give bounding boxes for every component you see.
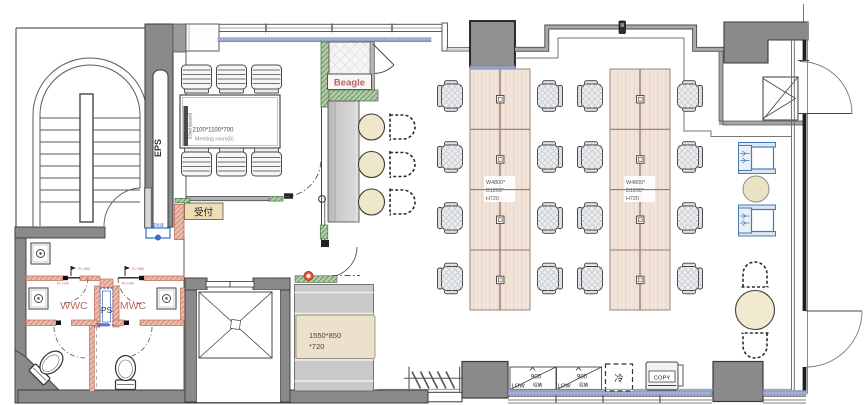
svg-text:FL+100: FL+100 xyxy=(57,282,69,286)
svg-text:EPS: EPS xyxy=(153,139,163,157)
svg-text:W4800*: W4800* xyxy=(486,180,506,186)
svg-text:LOW: LOW xyxy=(512,384,526,390)
svg-text:収納: 収納 xyxy=(533,382,543,389)
svg-text:COPY: COPY xyxy=(654,376,671,382)
svg-text:電気錠: 電気錠 xyxy=(152,222,164,228)
svg-text:PS: PS xyxy=(101,305,113,315)
svg-text:Meeting room(6): Meeting room(6) xyxy=(195,137,234,143)
svg-text:D1200*: D1200* xyxy=(626,188,645,194)
svg-text:WWC: WWC xyxy=(60,300,88,312)
svg-text:受付: 受付 xyxy=(194,207,214,219)
svg-text:*720: *720 xyxy=(309,342,324,351)
svg-text:900: 900 xyxy=(577,375,588,381)
svg-text:D1200*: D1200* xyxy=(486,188,505,194)
svg-text:2100*1100*700: 2100*1100*700 xyxy=(193,128,235,134)
svg-text:1550*850: 1550*850 xyxy=(309,331,341,340)
svg-text:FL+450: FL+450 xyxy=(78,267,90,271)
svg-text:LOW: LOW xyxy=(558,384,572,390)
svg-text:53inch(stand): 53inch(stand) xyxy=(188,112,193,139)
svg-text:H720: H720 xyxy=(626,196,639,202)
svg-text:H720: H720 xyxy=(486,196,499,202)
svg-text:収納: 収納 xyxy=(579,382,589,389)
svg-text:Beagle: Beagle xyxy=(334,78,365,89)
svg-text:FL+450: FL+450 xyxy=(132,267,144,271)
svg-text:冷: 冷 xyxy=(614,373,623,384)
svg-text:W4800*: W4800* xyxy=(626,180,646,186)
svg-text:900: 900 xyxy=(531,375,542,381)
svg-text:FL+100: FL+100 xyxy=(122,282,134,286)
